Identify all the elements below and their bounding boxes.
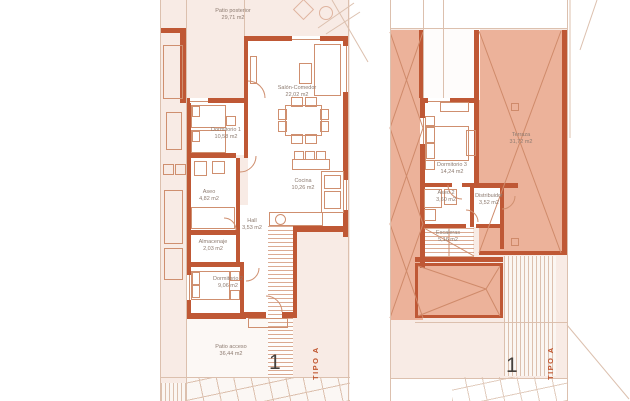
- room-label-distribuidor: Distribuidor 3,52 m2: [475, 193, 503, 206]
- room-area: 3,52 m2: [475, 200, 503, 207]
- room-area: 5,16 m2: [436, 237, 460, 244]
- room-label-hall: Hall 3,53 m2: [242, 218, 262, 231]
- terraza-drain: [511, 238, 519, 246]
- furniture-nightstand: [230, 290, 240, 300]
- wall: [186, 230, 240, 235]
- room-name: Aseo 2: [436, 190, 456, 197]
- furniture-sofa: [163, 45, 183, 99]
- furniture-chair: [320, 109, 329, 120]
- room-area: 9,06 m2: [213, 283, 243, 290]
- tree-decor: [319, 6, 333, 20]
- type-label-ground: TIPO A: [311, 340, 320, 380]
- room-name: Dormitorio 1: [211, 127, 241, 134]
- room-name: Patio posterior: [215, 8, 250, 15]
- wall: [420, 183, 452, 187]
- furniture-tv-unit: [250, 56, 257, 84]
- furniture-appliance: [175, 164, 186, 175]
- plot-line: [390, 378, 567, 379]
- plot-line: [443, 0, 444, 98]
- wall: [470, 187, 474, 227]
- furniture-nightstand: [425, 116, 435, 126]
- furniture-washbasin: [212, 161, 225, 174]
- furniture-hob: [324, 191, 341, 209]
- furniture-pillow: [426, 143, 435, 159]
- wall: [186, 313, 246, 319]
- wall: [240, 267, 244, 313]
- wall: [293, 226, 297, 318]
- room-name: Patio acceso: [215, 344, 247, 351]
- wall: [244, 41, 248, 98]
- window: [292, 36, 320, 41]
- furniture-coffee-table: [299, 63, 312, 84]
- room-label-escaleras: Escaleras 5,16 m2: [436, 230, 460, 243]
- furniture-pillow: [192, 272, 200, 285]
- furniture-washbasin: [424, 209, 436, 221]
- wall: [474, 30, 479, 188]
- room-name: Escaleras: [436, 230, 460, 237]
- room-area: 10,58 m2: [211, 134, 241, 141]
- plot-line: [160, 0, 161, 401]
- plot-line: [567, 0, 568, 401]
- paving-grid-left: [186, 377, 350, 401]
- furniture-appliance: [163, 164, 174, 175]
- room-label-almacenaje: Almacenaje 2,03 m2: [199, 239, 228, 252]
- room-area: 29,71 m2: [215, 15, 250, 22]
- furniture-chair: [305, 134, 317, 144]
- furniture-pillow: [192, 131, 200, 142]
- plot-line: [348, 0, 349, 401]
- entrance-porch-step: [248, 318, 288, 328]
- furniture-counter: [164, 190, 183, 244]
- wall: [479, 251, 567, 255]
- room-label-dormitorio-2: Dormitorio 2 9,06 m2: [213, 276, 243, 289]
- wall: [297, 226, 348, 232]
- wall: [236, 158, 240, 230]
- paving-grid-right: [452, 377, 567, 401]
- furniture-sofa: [314, 44, 341, 96]
- furniture-nightstand: [226, 116, 236, 126]
- wall: [478, 183, 518, 188]
- window: [190, 98, 208, 103]
- room-area: 4,82 m2: [199, 196, 219, 203]
- plot-line: [160, 377, 350, 378]
- wall: [186, 153, 236, 158]
- room-name: Dormitorio 2: [213, 276, 243, 283]
- room-label-dormitorio-3: Dormitorio 3 14,24 m2: [437, 162, 467, 175]
- room-area: 14,24 m2: [437, 169, 467, 176]
- furniture-chair: [320, 121, 329, 132]
- plot-line: [415, 322, 567, 323]
- furniture-toilet: [194, 161, 207, 176]
- first-floor-top-gap: [423, 28, 480, 100]
- furniture-kitchen-bar: [292, 159, 330, 170]
- wall: [244, 103, 248, 158]
- room-label-aseo-2: Aseo 2 3,60 m2: [436, 190, 456, 203]
- room-label-dormitorio-1: Dormitorio 1 10,58 m2: [211, 127, 241, 140]
- site-floorplan: Patio posterior 29,71 m2 Salón-Comedor 2…: [0, 0, 630, 401]
- room-name: Terraza: [510, 132, 533, 139]
- wall: [415, 257, 503, 262]
- furniture-dresser: [466, 130, 476, 156]
- terraza-drain: [511, 103, 519, 111]
- furniture-sink: [275, 214, 286, 225]
- room-label-patio-posterior: Patio posterior 29,71 m2: [215, 8, 250, 21]
- room-area: 10,26 m2: [292, 185, 315, 192]
- room-name: Cocina: [292, 178, 315, 185]
- furniture-chair: [291, 97, 303, 107]
- furniture-chair: [278, 121, 287, 132]
- room-area: 31,72 m2: [510, 139, 533, 146]
- furniture-chair: [291, 134, 303, 144]
- plot-edge-hatch: [161, 383, 186, 401]
- furniture-table: [166, 112, 182, 150]
- room-label-salon-comedor: Salón-Comedor 22,02 m2: [278, 85, 317, 98]
- furniture-dining-table: [285, 105, 322, 136]
- unit-number-first: 1: [506, 355, 518, 376]
- room-label-cocina: Cocina 10,26 m2: [292, 178, 315, 191]
- unit-number-ground: 1: [269, 352, 281, 373]
- room-label-aseo: Aseo 4,82 m2: [199, 189, 219, 202]
- plot-line: [186, 0, 187, 401]
- furniture-chair: [278, 109, 287, 120]
- furniture-bathtub: [191, 207, 235, 229]
- type-label-first: TIPO A: [546, 340, 555, 380]
- furniture-wardrobe: [440, 102, 469, 112]
- room-area: 3,60 m2: [436, 197, 456, 204]
- furniture-pillow: [192, 285, 200, 298]
- wall: [476, 224, 504, 228]
- room-area: 3,53 m2: [242, 225, 262, 232]
- furniture-chair: [305, 97, 317, 107]
- wall: [420, 224, 466, 228]
- room-name: Dormitorio 3: [437, 162, 467, 169]
- lower-hip-roof: [415, 263, 503, 318]
- furniture-pillow: [426, 127, 435, 143]
- room-name: Salón-Comedor: [278, 85, 317, 92]
- furniture-counter: [164, 248, 183, 280]
- room-area: 2,03 m2: [199, 246, 228, 253]
- wall: [186, 262, 244, 267]
- furniture-pillow: [192, 106, 200, 117]
- plot-line: [423, 0, 424, 98]
- room-name: Almacenaje: [199, 239, 228, 246]
- room-name: Distribuidor: [475, 193, 503, 200]
- plot-line: [390, 28, 567, 29]
- furniture-sink: [324, 175, 341, 189]
- room-area: 22,02 m2: [278, 92, 317, 99]
- plot-line: [390, 0, 391, 401]
- room-label-patio-acceso: Patio acceso 36,44 m2: [215, 344, 247, 357]
- room-area: 36,44 m2: [215, 351, 247, 358]
- room-label-terraza: Terraza 31,72 m2: [510, 132, 533, 145]
- furniture-nightstand: [425, 160, 435, 170]
